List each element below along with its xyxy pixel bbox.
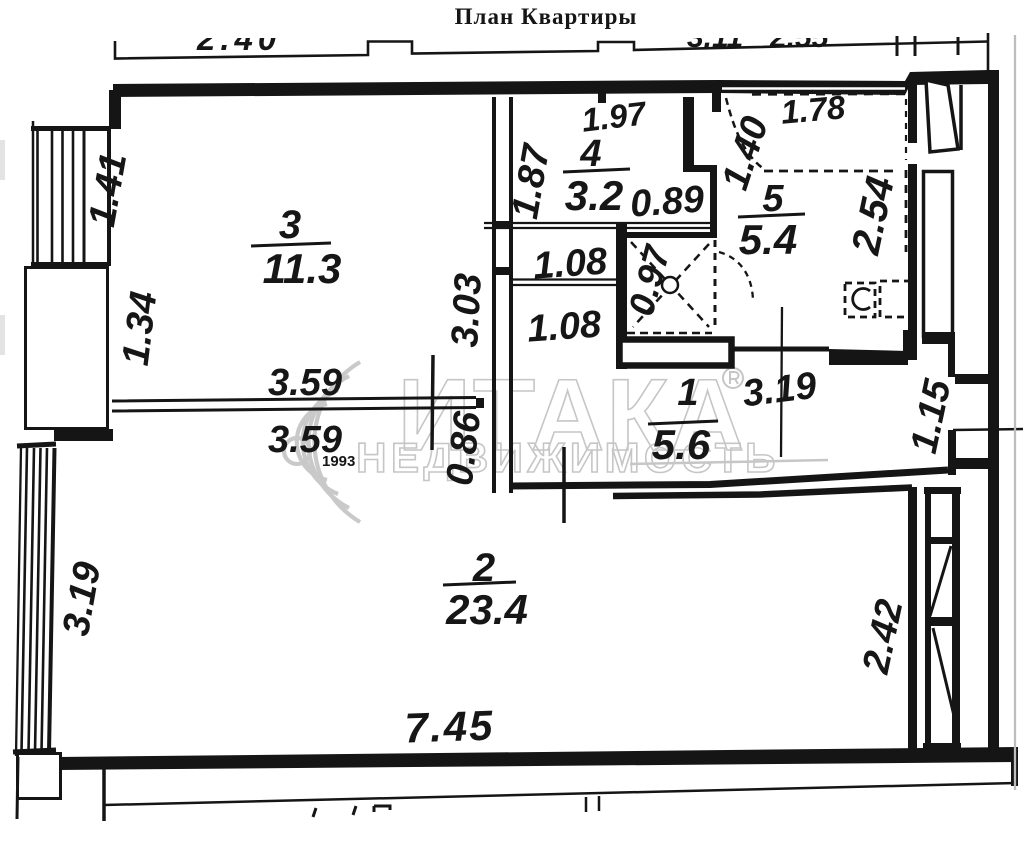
svg-text:1.08: 1.08 [526, 303, 604, 350]
svg-text:7.45: 7.45 [404, 701, 495, 751]
svg-text:3.59: 3.59 [268, 419, 342, 461]
svg-text:3: 3 [279, 203, 301, 247]
svg-text:23.4: 23.4 [445, 586, 528, 633]
svg-text:1.78: 1.78 [779, 88, 847, 131]
svg-text:1: 1 [677, 372, 698, 414]
svg-text:3.59: 3.59 [268, 362, 342, 404]
svg-text:5.6: 5.6 [652, 421, 711, 468]
svg-text:НЕДВИЖИМОСТЬ: НЕДВИЖИМОСТЬ [356, 434, 780, 481]
svg-text:4: 4 [579, 133, 601, 175]
svg-text:План Квартиры: План Квартиры [455, 4, 638, 29]
svg-text:3.2: 3.2 [565, 172, 623, 219]
svg-text:1.34: 1.34 [115, 289, 166, 368]
svg-text:11.3: 11.3 [263, 245, 342, 292]
svg-text:1.08: 1.08 [532, 240, 610, 287]
svg-text:3.19: 3.19 [740, 365, 819, 416]
svg-text:5.4: 5.4 [739, 216, 797, 263]
svg-text:0.89: 0.89 [629, 179, 706, 226]
svg-text:3.03: 3.03 [444, 272, 490, 348]
